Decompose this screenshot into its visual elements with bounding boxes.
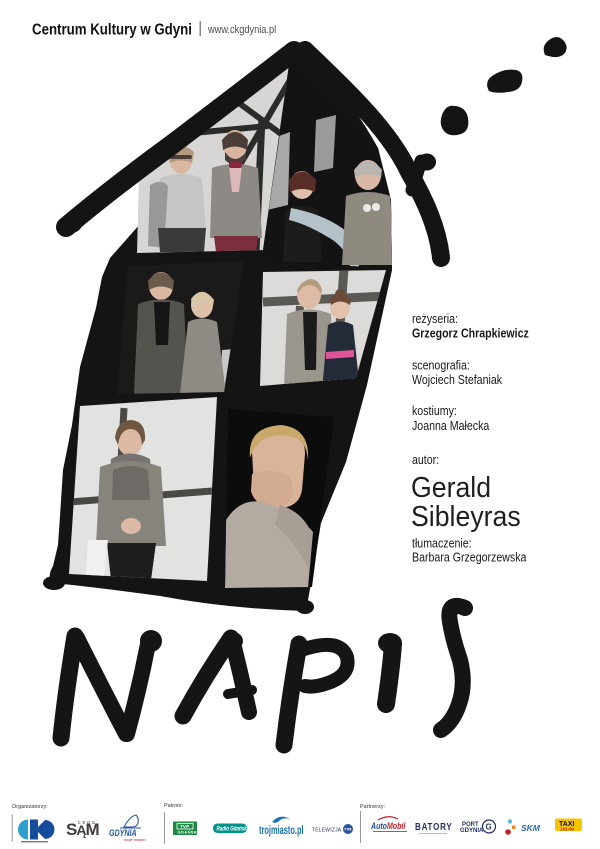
svg-text:G: G [486, 823, 492, 832]
svg-text:scenografia:: scenografia: [412, 359, 470, 373]
svg-text:TTM: TTM [344, 828, 351, 832]
svg-text:Barbara Grzegorzewska: Barbara Grzegorzewska [412, 551, 527, 565]
svg-text:TELEWIZJA: TELEWIZJA [312, 828, 342, 834]
svg-text:Joanna Małecka: Joanna Małecka [412, 419, 490, 433]
svg-text:AutoMobil: AutoMobil [370, 821, 406, 831]
svg-text:Partnerzy:: Partnerzy: [360, 804, 386, 810]
svg-text:autor:: autor: [412, 453, 439, 467]
svg-text:191-90: 191-90 [560, 827, 575, 832]
svg-text:GDAŃSK: GDAŃSK [178, 830, 198, 835]
svg-text:Gerald: Gerald [411, 471, 491, 503]
svg-text:Patroni:: Patroni: [164, 803, 183, 809]
svg-text:tłumaczenie:: tłumaczenie: [412, 537, 472, 551]
svg-text:cena: cena [78, 820, 97, 826]
svg-text:kostiumy:: kostiumy: [412, 404, 457, 418]
svg-text:www.ckgdynia.pl: www.ckgdynia.pl [207, 24, 276, 36]
svg-text:SKM: SKM [521, 823, 541, 833]
svg-text:reżyseria:: reżyseria: [412, 312, 458, 326]
svg-text:moje miasto: moje miasto [124, 837, 146, 842]
svg-text:Sibleyras: Sibleyras [411, 500, 521, 532]
svg-text:GDYNIA: GDYNIA [460, 828, 484, 834]
svg-text:trojmiasto.pl: trojmiasto.pl [259, 824, 304, 837]
svg-text:Radio Gdańsk: Radio Gdańsk [217, 826, 248, 833]
svg-text:Grzegorz Chrapkiewicz: Grzegorz Chrapkiewicz [412, 327, 529, 341]
svg-text:Organizatorzy:: Organizatorzy: [12, 804, 48, 810]
svg-text:BATORY: BATORY [415, 821, 453, 832]
svg-text:Wojciech Stefaniak: Wojciech Stefaniak [412, 373, 502, 387]
svg-text:Centrum Kultury w Gdyni: Centrum Kultury w Gdyni [32, 21, 192, 38]
